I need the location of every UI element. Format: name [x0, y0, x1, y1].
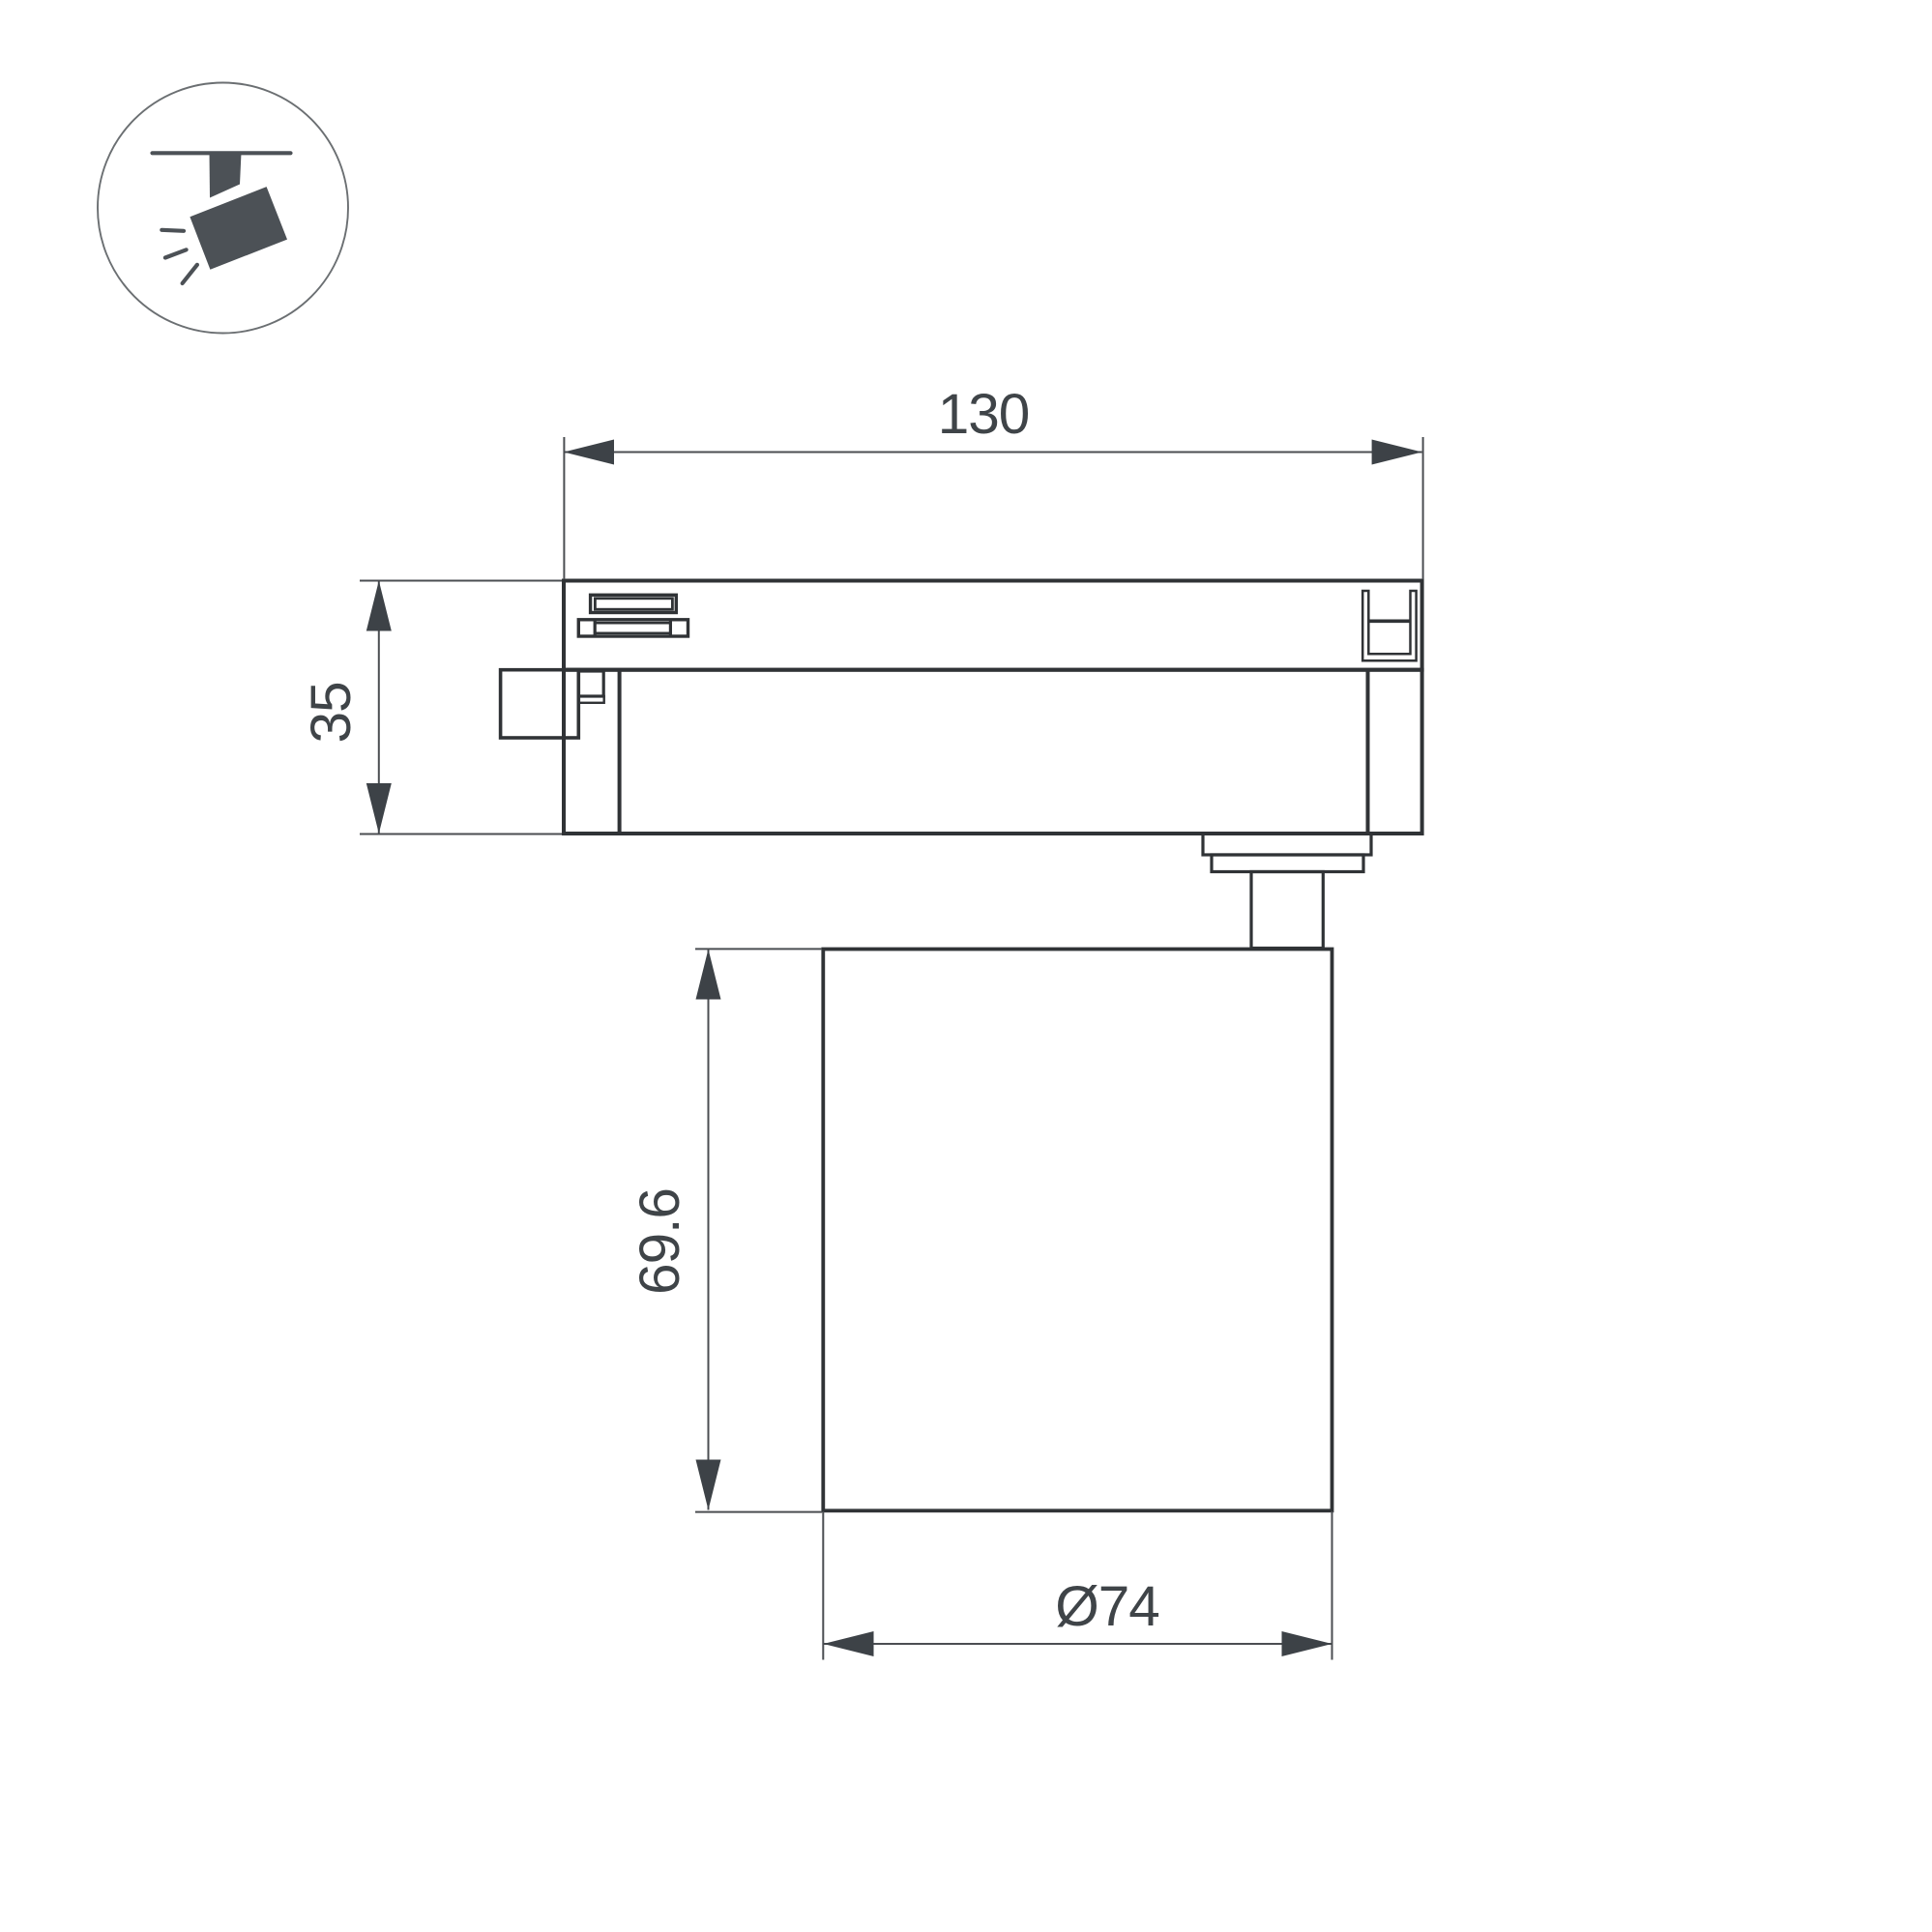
svg-text:Ø74: Ø74: [1055, 1575, 1159, 1638]
svg-text:35: 35: [300, 682, 363, 743]
svg-text:69.6: 69.6: [629, 1188, 691, 1295]
svg-text:130: 130: [938, 383, 1030, 446]
